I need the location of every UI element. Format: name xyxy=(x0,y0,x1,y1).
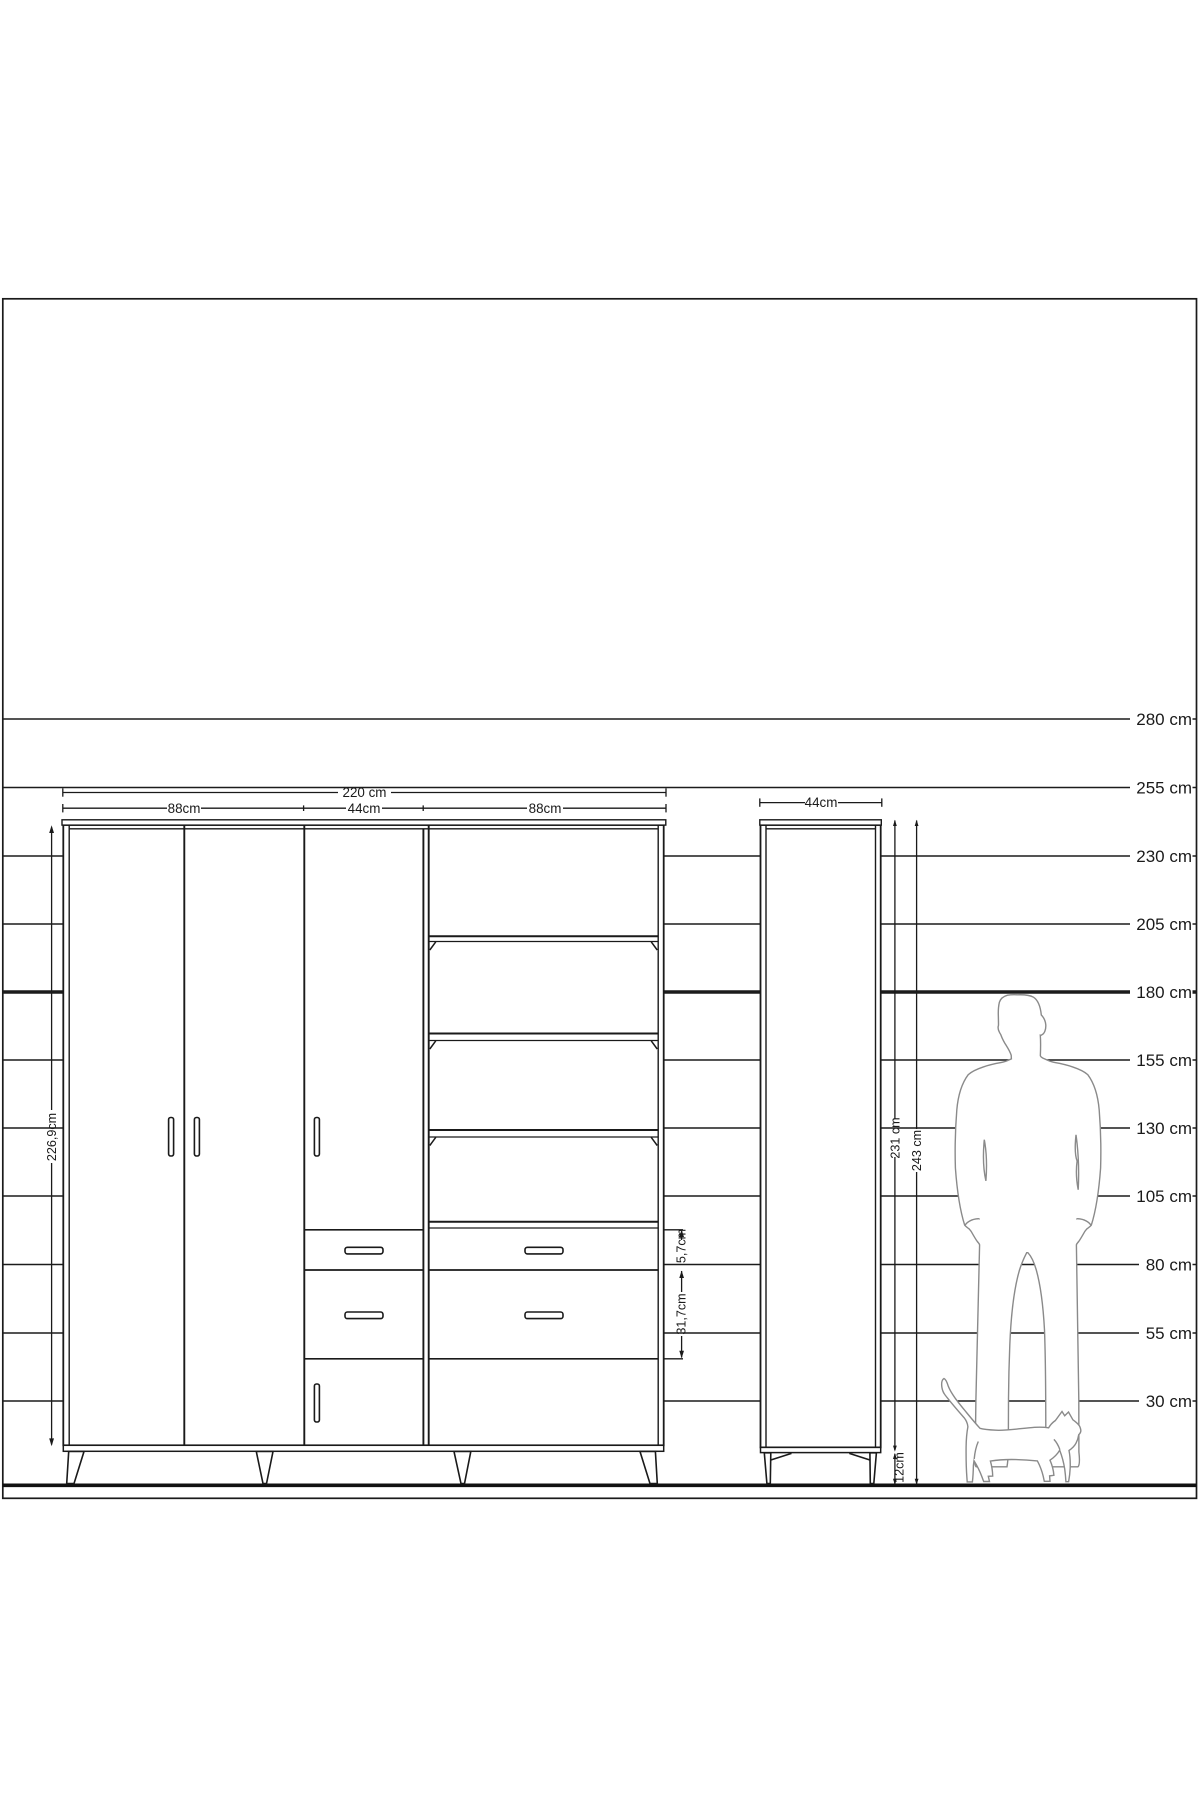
svg-text:155 cm: 155 cm xyxy=(1136,1051,1192,1070)
svg-text:180 cm: 180 cm xyxy=(1136,983,1192,1002)
svg-text:30 cm: 30 cm xyxy=(1146,1392,1192,1411)
svg-text:12cm: 12cm xyxy=(893,1452,907,1483)
svg-text:230 cm: 230 cm xyxy=(1136,847,1192,866)
svg-text:243 cm: 243 cm xyxy=(910,1130,924,1171)
svg-text:44cm: 44cm xyxy=(348,801,381,816)
svg-text:80 cm: 80 cm xyxy=(1146,1256,1192,1275)
svg-text:55 cm: 55 cm xyxy=(1146,1324,1192,1343)
svg-text:105 cm: 105 cm xyxy=(1136,1187,1192,1206)
svg-text:88cm: 88cm xyxy=(529,801,562,816)
svg-text:255 cm: 255 cm xyxy=(1136,779,1192,798)
svg-text:5,7cm: 5,7cm xyxy=(675,1229,689,1263)
svg-text:205 cm: 205 cm xyxy=(1136,915,1192,934)
svg-text:220 cm: 220 cm xyxy=(343,785,387,800)
svg-text:31,7cm: 31,7cm xyxy=(675,1293,689,1334)
svg-text:226,9cm: 226,9cm xyxy=(45,1113,59,1161)
svg-text:88cm: 88cm xyxy=(168,801,201,816)
svg-text:280 cm: 280 cm xyxy=(1136,710,1192,729)
svg-text:130 cm: 130 cm xyxy=(1136,1119,1192,1138)
svg-text:231 cm: 231 cm xyxy=(888,1117,902,1158)
svg-text:44cm: 44cm xyxy=(805,795,838,810)
